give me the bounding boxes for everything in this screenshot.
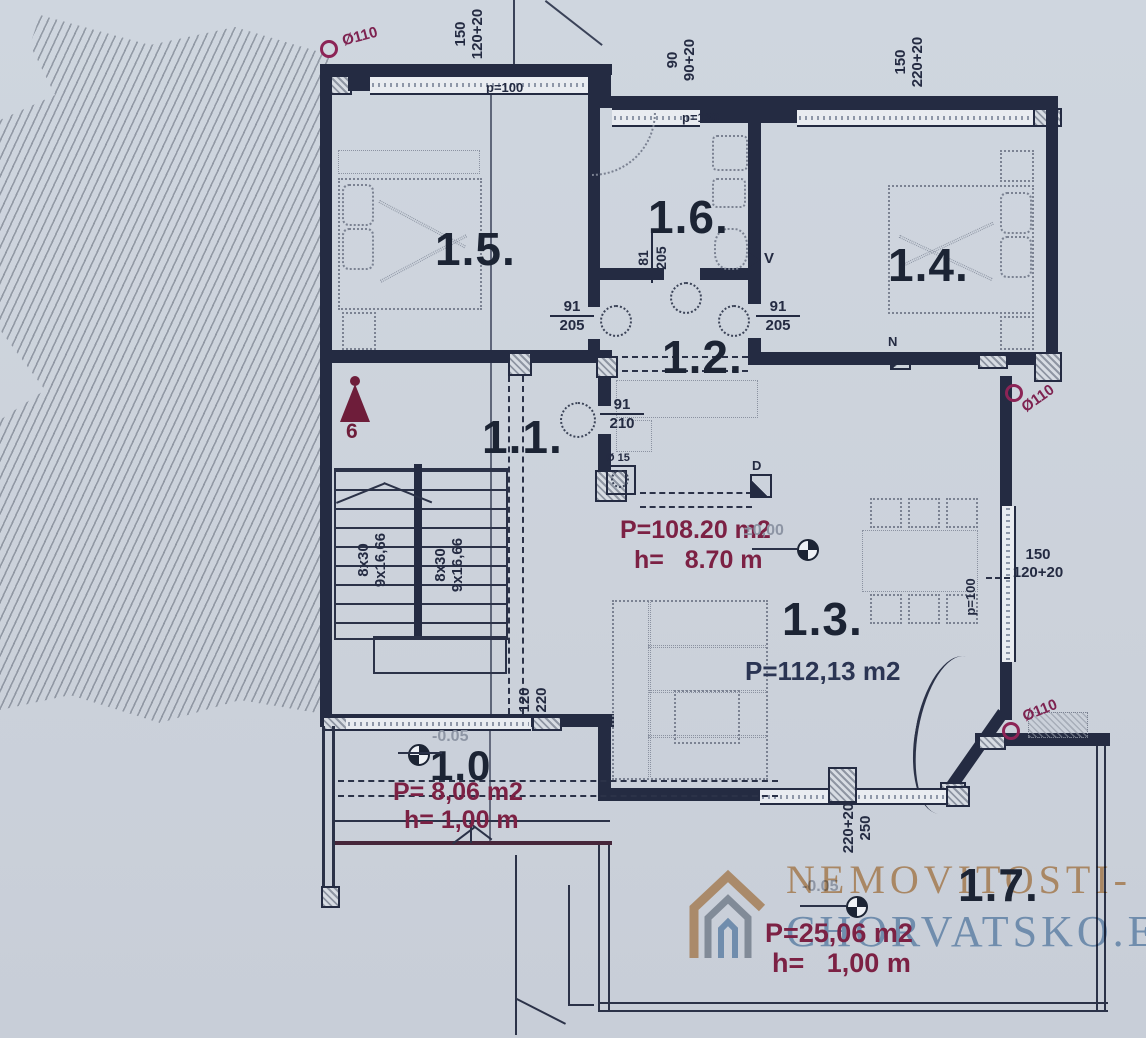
room-label-1-4: 1.4. <box>888 238 969 292</box>
watermark-house-icon <box>678 862 778 962</box>
wardrobe <box>338 150 480 174</box>
drain-label-right: Ø110 <box>1018 381 1057 416</box>
parapet-top: p=100 <box>486 80 523 95</box>
area-1-3: P=112,13 m2 <box>745 656 900 687</box>
chair <box>908 498 940 528</box>
nightstand <box>1000 150 1034 182</box>
wall-pier <box>978 735 1006 750</box>
pillow <box>1000 236 1032 278</box>
floor-drain-label: Ø 15 <box>606 452 630 464</box>
drain-circle <box>320 40 338 58</box>
window-balcony-door <box>797 108 1033 127</box>
slope-arrow <box>516 998 566 1025</box>
parapet-right: p=100 <box>964 567 984 627</box>
wall-pier <box>946 786 970 807</box>
chair <box>946 498 978 528</box>
chair <box>870 594 902 624</box>
sink <box>712 135 748 171</box>
room-label-1-3: 1.3. <box>782 592 863 646</box>
level-line <box>398 752 442 754</box>
terrace-border <box>608 845 610 1012</box>
shower <box>592 112 656 176</box>
room-label-1-6: 1.6. <box>648 190 729 244</box>
stairs-rail <box>414 464 422 638</box>
north-symbol <box>890 352 911 370</box>
sofa-cushion-line <box>648 600 651 777</box>
level-1-0: -0.05 <box>432 728 468 746</box>
dim-right-window: 150 120+20 <box>1008 546 1068 582</box>
area-1-0: P= 8,06 m2 <box>393 778 523 807</box>
door-size-1-4: 91 205 <box>756 298 800 335</box>
terrace-edge-line <box>568 885 570 1005</box>
terrace-step-edge <box>334 841 612 845</box>
height-1-0: h= 1,00 m <box>404 806 519 835</box>
door-swing <box>600 305 632 337</box>
north-label: N <box>888 334 897 349</box>
section-line <box>515 855 517 1035</box>
nightstand <box>1000 316 1034 350</box>
height-1-7: h= 1,00 m <box>772 948 911 979</box>
pillow <box>342 184 374 226</box>
terrace-wall-line <box>332 726 335 906</box>
kitchen-dashed <box>640 506 752 508</box>
terrace-edge-line <box>568 1004 594 1006</box>
window <box>1000 506 1016 662</box>
leader-line <box>545 0 603 46</box>
level-1-3: ±0,00 <box>744 522 784 540</box>
wall-pier <box>321 886 340 908</box>
section-line <box>513 0 515 64</box>
dim-top-right: 150 220+20 <box>892 22 932 102</box>
level-symbol <box>797 539 819 561</box>
wall <box>598 727 611 801</box>
dim-top-mid: 90 90+20 <box>664 20 704 100</box>
door-swing <box>670 282 702 314</box>
floor-drain-circle <box>611 470 629 488</box>
terrain-hatch <box>0 15 330 727</box>
coffee-table <box>674 690 740 744</box>
wall-pier <box>1034 352 1062 382</box>
wall-pier <box>322 716 348 731</box>
dim-hall-door: 120 220 <box>516 660 556 740</box>
sofa-cushion-line <box>648 645 766 648</box>
terrace-border <box>598 845 600 1012</box>
wall-pier <box>508 352 532 376</box>
room-label-1-2: 1.2. <box>662 330 743 384</box>
downpipe-label: D <box>752 458 761 473</box>
dim-leader-dashed <box>986 577 1010 579</box>
drain-label-top-left: Ø110 <box>340 24 379 50</box>
terrace-border <box>598 1002 1108 1004</box>
wall-pier <box>978 354 1008 369</box>
wall <box>320 363 332 726</box>
parapet-bath: p=130 <box>682 110 719 125</box>
kitchen-dashed <box>640 492 752 494</box>
downpipe-symbol <box>750 474 772 498</box>
level-line <box>752 548 797 550</box>
dining-table <box>862 530 978 592</box>
section-marker-number: 6 <box>346 420 358 444</box>
vent-symbol <box>748 252 760 268</box>
wall <box>320 64 332 364</box>
dim-top-left: 150 120+20 <box>452 0 492 74</box>
room-label-1-1: 1.1. <box>482 410 563 464</box>
chair <box>870 498 902 528</box>
door-swing <box>560 402 596 438</box>
terrace-border <box>598 1010 1108 1012</box>
nightstand <box>342 312 376 350</box>
area-1-7: P=25,06 m2 <box>765 918 913 949</box>
level-symbol <box>408 744 430 766</box>
wall <box>348 75 370 91</box>
room-label-1-5: 1.5. <box>435 222 516 276</box>
chair <box>908 594 940 624</box>
height-1-3-marked: h= 8.70 m <box>634 546 763 575</box>
wall <box>1046 96 1058 376</box>
door-size-1-1: 91 210 <box>600 396 644 433</box>
wall <box>320 350 612 363</box>
stairs-flight2-label: 8x30 9x16,66 <box>432 515 472 615</box>
window <box>370 75 598 95</box>
door-size-1-5: 91 205 <box>550 298 594 335</box>
wall-pier <box>596 356 618 378</box>
drain-circle <box>1002 722 1020 740</box>
pillow <box>342 228 374 270</box>
vent-label: V <box>764 250 774 267</box>
room-label-1-7: 1.7. <box>958 858 1039 912</box>
stairs-flight1-label: 8x30 9x16,66 <box>355 510 395 610</box>
terrace-wall-line <box>322 726 325 906</box>
floor-plan: 8x30 9x16,66 8x30 9x16,66 91 <box>0 0 1146 1038</box>
pillow <box>1000 192 1032 234</box>
stairs-landing <box>373 636 507 674</box>
section-marker-triangle <box>340 384 370 422</box>
